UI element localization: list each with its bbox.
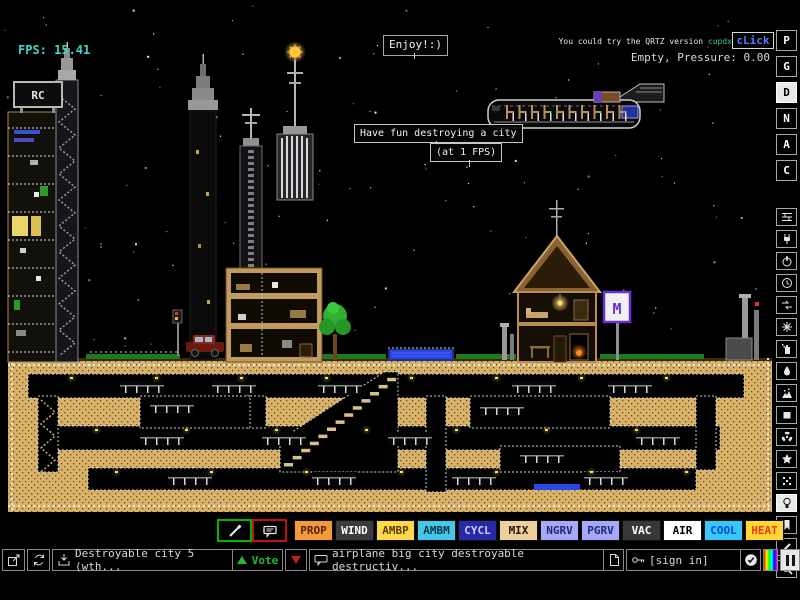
tag-sign-icon	[314, 553, 328, 567]
at-fps-sign-pointer	[469, 160, 470, 167]
display-mode-p-button[interactable]: P	[776, 30, 797, 51]
sign-tool-button[interactable]	[252, 519, 287, 542]
billboard-text: RC	[31, 89, 44, 102]
element-cool-button[interactable]: COOL	[704, 520, 743, 541]
save-button[interactable]: Destroyable city 5 (wth...	[52, 549, 234, 571]
element-mix-button[interactable]: MIX	[499, 520, 538, 541]
explosive-icon	[781, 321, 793, 333]
pause-button[interactable]	[780, 549, 800, 571]
gases-icon	[781, 343, 793, 355]
menu-walls-button[interactable]	[776, 208, 797, 226]
life-icon	[781, 475, 793, 487]
open-icon	[7, 553, 21, 567]
hint-username: cupdx	[708, 37, 732, 46]
mid-tower	[188, 54, 218, 360]
blank-page-icon	[607, 553, 621, 567]
render-options-button[interactable]	[740, 549, 761, 571]
display-mode-n-button[interactable]: N	[776, 108, 797, 129]
tags-button[interactable]: airplane big city destroyable destructiv…	[309, 549, 605, 571]
sample-pen-icon	[227, 523, 243, 539]
save-icon	[57, 553, 71, 567]
menu-tools-button[interactable]	[776, 494, 797, 512]
vote-up-label: Vote	[252, 554, 279, 567]
bottom-toolbar: Destroyable city 5 (wth... Vote airplane…	[0, 548, 800, 572]
tools-icon	[781, 497, 793, 509]
element-buttons: PROPWINDAMBPAMBMCYCLMIXNGRVPGRVVACAIRCOO…	[294, 520, 786, 541]
key-icon	[631, 553, 645, 567]
element-vac-button[interactable]: VAC	[622, 520, 661, 541]
element-pgrv-button[interactable]: PGRV	[581, 520, 620, 541]
element-prop-button[interactable]: PROP	[294, 520, 333, 541]
enjoy-sign: Enjoy!:)	[383, 35, 448, 56]
solids-icon	[781, 409, 793, 421]
enjoy-sign-pointer	[414, 53, 415, 59]
sensors-icon	[781, 277, 793, 289]
force-icon	[781, 299, 793, 311]
vote-down-icon	[291, 556, 301, 564]
liquids-icon	[781, 365, 793, 377]
decoration-editor-button[interactable]	[763, 549, 778, 571]
open-browser-button[interactable]	[2, 549, 25, 571]
display-mode-a-button[interactable]: A	[776, 134, 797, 155]
click-link-sign[interactable]: cLick	[732, 32, 774, 49]
menu-radioactive-button[interactable]	[776, 428, 797, 446]
display-mode-g-button[interactable]: G	[776, 56, 797, 77]
walls-icon	[781, 211, 793, 223]
display-mode-c-button[interactable]: C	[776, 160, 797, 181]
display-mode-d-button[interactable]: D	[776, 82, 797, 103]
sign-in-label: [sign in]	[649, 554, 709, 567]
element-wind-button[interactable]: WIND	[335, 520, 374, 541]
fps-counter: FPS: 15.41	[18, 43, 90, 57]
vote-up-button[interactable]: Vote	[232, 549, 283, 571]
element-air-button[interactable]: AIR	[663, 520, 702, 541]
display-mode-buttons: PGDNAC	[776, 30, 797, 186]
menu-powered-button[interactable]	[776, 252, 797, 270]
check-circle-icon	[744, 553, 758, 567]
save-title: Destroyable city 5 (wth...	[75, 547, 233, 573]
powered-icon	[781, 255, 793, 267]
version-hint: You could try the QRTZ version cupdx	[559, 37, 732, 46]
pause-icon	[786, 555, 789, 566]
radioactive-icon	[781, 431, 793, 443]
menu-explosive-button[interactable]	[776, 318, 797, 336]
menu-life-button[interactable]	[776, 472, 797, 490]
have-fun-sign: Have fun destroying a city	[354, 124, 523, 143]
metro-sign-text: M	[612, 300, 621, 318]
element-ambp-button[interactable]: AMBP	[376, 520, 415, 541]
menu-solids-button[interactable]	[776, 406, 797, 424]
menu-force-button[interactable]	[776, 296, 797, 314]
electronic-icon	[781, 233, 793, 245]
element-ngrv-button[interactable]: NGRV	[540, 520, 579, 541]
vote-down-button[interactable]	[285, 549, 307, 571]
menu-liquids-button[interactable]	[776, 362, 797, 380]
ground	[8, 354, 772, 512]
left-office-building	[8, 112, 56, 362]
menu-special-button[interactable]	[776, 450, 797, 468]
pool	[388, 348, 454, 361]
powder-toy-window: RC	[0, 0, 800, 600]
sample-tool-button[interactable]	[217, 519, 252, 542]
at-fps-sign: (at 1 FPS)	[430, 143, 502, 162]
menu-electronic-button[interactable]	[776, 230, 797, 248]
menu-powders-button[interactable]	[776, 384, 797, 402]
special-icon	[781, 453, 793, 465]
element-ambm-button[interactable]: AMBM	[417, 520, 456, 541]
reload-save-button[interactable]	[27, 549, 50, 571]
vote-up-icon	[237, 556, 247, 564]
tags-text: airplane big city destroyable destructiv…	[332, 547, 604, 573]
element-cycl-button[interactable]: CYCL	[458, 520, 497, 541]
menu-gases-button[interactable]	[776, 340, 797, 358]
hud-status-line: Empty, Pressure: 0.00	[631, 51, 770, 64]
reload-icon	[32, 553, 46, 567]
menu-sensors-button[interactable]	[776, 274, 797, 292]
version-hint-text: You could try the QRTZ version	[559, 37, 704, 46]
clear-sim-button[interactable]	[603, 549, 624, 571]
simulation-canvas[interactable]: RC	[0, 0, 800, 600]
element-heat-button[interactable]: HEAT	[745, 520, 784, 541]
powders-icon	[781, 387, 793, 399]
sign-in-button[interactable]: [sign in]	[626, 549, 742, 571]
sign-tool-icon	[262, 523, 278, 539]
